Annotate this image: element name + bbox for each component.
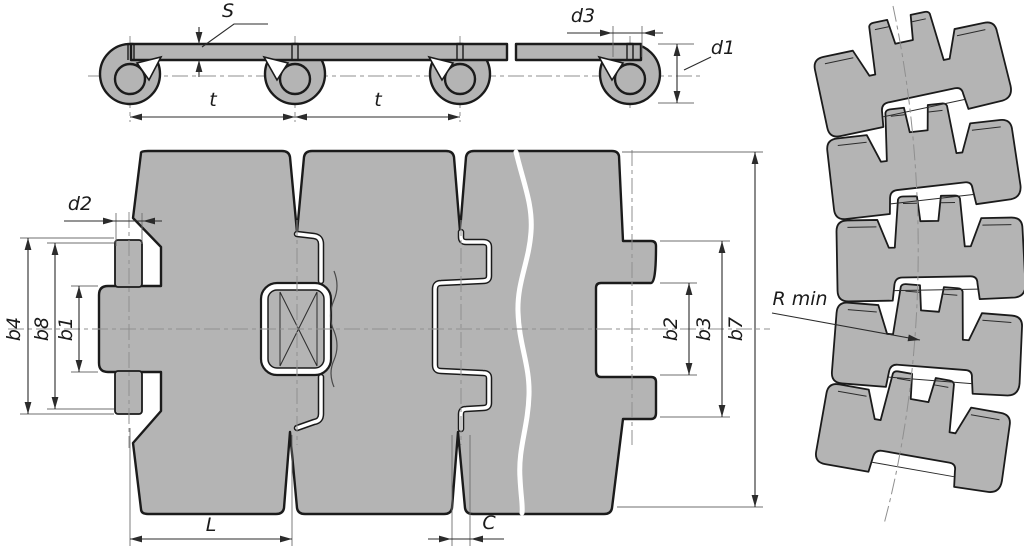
- plate-bar-left: [131, 44, 507, 60]
- dim-label-r-min: R min: [772, 288, 827, 310]
- dim-label-C: C: [482, 512, 496, 534]
- dim-label-d3: d3: [571, 5, 595, 27]
- technical-drawing-page: S t t d3 d1: [0, 0, 1024, 548]
- plate-bar-right: [516, 44, 641, 60]
- dim-label-b2: b2: [660, 317, 682, 341]
- dim-label-s: S: [222, 0, 234, 22]
- dim-label-b3: b3: [693, 317, 715, 341]
- plan-view: d2 b4 b8 b1 b2: [3, 150, 770, 546]
- dim-label-d1: d1: [711, 37, 735, 59]
- dim-label-b4: b4: [3, 317, 25, 341]
- dim-label-d2: d2: [68, 193, 92, 215]
- dim-label-b1: b1: [55, 317, 77, 341]
- plate-silhouette: [99, 151, 656, 514]
- dim-label-L: L: [206, 514, 217, 536]
- side-profile-view: S t t d3 d1: [88, 0, 735, 122]
- dimension-b1: b1: [55, 286, 98, 372]
- dim-label-t-left: t: [209, 89, 218, 111]
- dimension-S: S: [199, 0, 268, 77]
- dimension-t-left: t: [130, 89, 295, 117]
- dim-label-b7: b7: [725, 317, 747, 341]
- technical-drawing-canvas: S t t d3 d1: [0, 0, 1024, 548]
- side-flex-view: R min: [772, 0, 1024, 524]
- dimension-d1: d1: [658, 37, 735, 103]
- dim-label-b8: b8: [31, 317, 53, 341]
- dim-label-t-right: t: [374, 89, 383, 111]
- dimension-t-right: t: [295, 89, 460, 117]
